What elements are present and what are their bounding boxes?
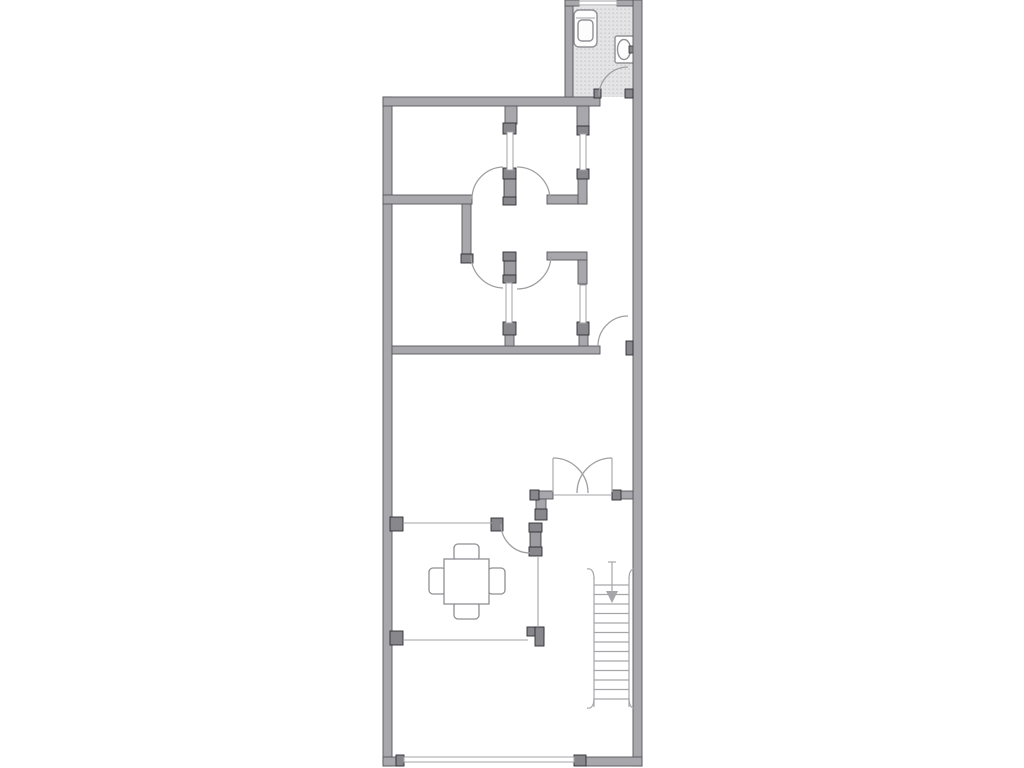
room1-south-wall (383, 195, 472, 204)
door-leaf-lower-pair (504, 260, 516, 276)
dining-door-arc (501, 524, 530, 553)
lower-left-door-arc (471, 256, 503, 288)
corridor-west-wall (462, 204, 471, 254)
toilet-bowl (578, 20, 593, 41)
chair-right (488, 568, 505, 594)
jamb-dining-corner-v (535, 627, 544, 646)
exterior-wall-right (633, 0, 642, 766)
lower-right-door-arc (517, 256, 551, 289)
french-door-arc-right (577, 458, 612, 493)
dining-table (444, 559, 489, 604)
upper-right-door-arc (517, 167, 550, 199)
partition-stub-upper-left (505, 106, 517, 124)
floor-plan (0, 0, 1024, 768)
door-leaf-dining (530, 531, 541, 548)
dining-set (429, 544, 505, 619)
floor-plan-page (0, 0, 1024, 768)
door-leaf-upper-pair (504, 178, 516, 198)
jamb-dining-line-left (390, 517, 403, 531)
bathroom-window (579, 1, 617, 5)
door-arcs (471, 67, 628, 553)
corridor-door-arc (598, 316, 628, 346)
jamb-lower-post-bottom (503, 275, 516, 283)
hall-east-wall-lower-vert (578, 260, 587, 284)
jamb-lower-left-foot (503, 322, 516, 335)
bathroom (573, 6, 634, 97)
interior-window-lower-right (580, 285, 586, 323)
interior-window-upper-left (507, 132, 513, 170)
jambs-and-leaves (390, 89, 633, 766)
exterior-wall-top (383, 97, 600, 106)
stair-rail-hook (587, 569, 594, 579)
jamb-bath-door-right (625, 89, 633, 98)
hall-east-wall-lower (547, 252, 587, 260)
bathroom-wall-top-left (565, 0, 579, 6)
hall-east-wall-upper-vert (578, 178, 587, 204)
partition-stub-upper-right (577, 106, 589, 127)
jamb-lower-line-left (390, 631, 403, 645)
partition-foot-lower-right (579, 334, 588, 346)
exterior-wall-bottom-right (585, 757, 642, 766)
french-door-arc-left (553, 458, 588, 493)
jamb-bottom-window-right (574, 755, 586, 766)
bathroom-wall-top-right (617, 0, 633, 6)
jamb-upper-post-bottom (503, 197, 516, 205)
corridor-south-wall (392, 346, 600, 354)
interior-window-lower-left (506, 283, 512, 323)
jamb-corridor-door (626, 341, 633, 355)
sink-basin (618, 40, 631, 60)
jamb-lower-post-top (503, 252, 516, 261)
bathroom-wall-left (565, 0, 573, 97)
jamb-dining-leaf-top (529, 523, 542, 532)
stair-rail-hook (587, 698, 594, 708)
jamb-french-west-vert-cap (535, 509, 547, 520)
jamb-bottom-window-left (396, 755, 404, 766)
staircase (587, 562, 636, 708)
jamb-french-west-end (530, 490, 539, 500)
thin-lines (403, 458, 612, 640)
jamb-dining-leaf-bottom (529, 547, 542, 556)
interior-window-upper-right (580, 134, 586, 170)
stair-arrow-head (606, 591, 618, 603)
upper-left-door-arc (472, 167, 503, 199)
bottom-window (404, 757, 574, 762)
partition-foot-lower-left (505, 334, 514, 346)
jamb-french-east-end (612, 490, 621, 500)
jamb-lower-right-foot (577, 322, 589, 335)
